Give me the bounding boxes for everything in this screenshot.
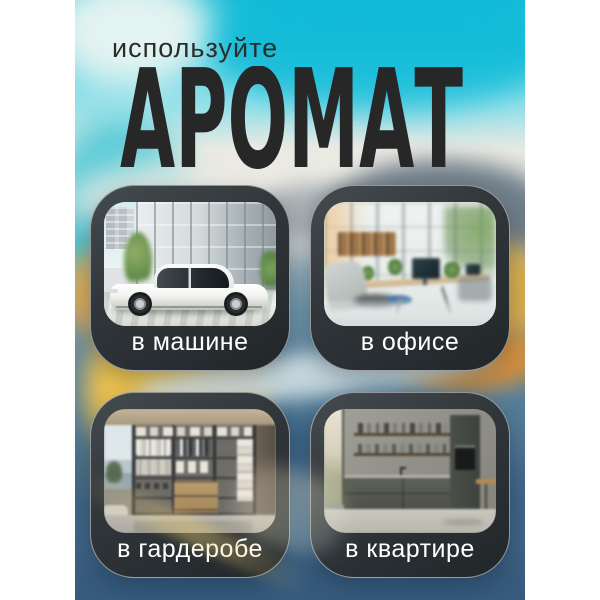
- usage-card-apartment: в квартире: [310, 392, 510, 578]
- usage-card-car: в машине: [90, 185, 290, 371]
- card-label-apartment: в квартире: [311, 535, 509, 564]
- card-label-car: в машине: [91, 328, 289, 357]
- office-scene: [324, 202, 496, 326]
- shoe-row: [136, 483, 168, 489]
- card-photo-car: [104, 202, 276, 326]
- hanging-clothes-dark: [176, 439, 211, 456]
- front-wheel: [128, 292, 152, 316]
- monitor-small: [466, 264, 480, 275]
- car-windows: [157, 268, 229, 288]
- kicker-text: используйте: [112, 35, 278, 62]
- card-label-wardrobe: в гардеробе: [91, 535, 289, 564]
- kitchen-scene: [324, 409, 496, 533]
- wooden-drawers: [174, 481, 218, 513]
- title-graphic: АРОМАТ: [118, 66, 468, 176]
- small-tree: [106, 461, 122, 483]
- car-scene: [104, 202, 276, 326]
- desk-plant: [444, 262, 460, 278]
- kitchen-soft-layer: [324, 409, 496, 533]
- open-shelf: [354, 433, 450, 436]
- usage-card-office: в офисе: [310, 185, 510, 371]
- green-tree-right: [260, 248, 276, 290]
- monitor-stand: [423, 278, 427, 285]
- open-shelf: [354, 453, 450, 456]
- wardrobe-soft-layer: [104, 409, 276, 533]
- base-cabinets: [344, 478, 450, 510]
- wood-ceiling: [104, 409, 276, 425]
- wardrobe-scene: [104, 409, 276, 533]
- green-tree-left: [124, 232, 152, 290]
- main-title: АРОМАТ: [120, 66, 463, 176]
- monitor: [412, 258, 440, 279]
- card-photo-apartment: [324, 409, 496, 533]
- glossy-floor: [324, 300, 496, 326]
- folded-stacks: [176, 461, 211, 473]
- faucet-spout: [400, 467, 406, 469]
- tall-window: [324, 409, 344, 505]
- dark-right-wall: [256, 425, 276, 515]
- rug: [134, 521, 252, 533]
- chairs-right: [458, 276, 492, 302]
- storage-boxes: [136, 427, 252, 436]
- card-label-office: в офисе: [311, 328, 509, 357]
- office-soft-layer: [324, 202, 496, 326]
- card-photo-office: [324, 202, 496, 326]
- desk-plant: [388, 259, 402, 275]
- rear-wheel: [224, 292, 248, 316]
- floor-shadow: [442, 519, 484, 525]
- shelving-unit: [132, 425, 256, 515]
- dishes-upper-shelf: [358, 423, 446, 433]
- promo-poster: используйте АРОМАТ в машине: [0, 0, 600, 600]
- dishes-lower-shelf: [358, 444, 446, 453]
- built-in-oven: [455, 445, 475, 470]
- hanging-shirts-light: [136, 439, 171, 456]
- usage-card-wardrobe: в гардеробе: [90, 392, 290, 578]
- hanging-pants: [136, 459, 171, 475]
- card-photo-wardrobe: [104, 409, 276, 533]
- car-headlight: [109, 289, 118, 293]
- bookshelf: [338, 232, 396, 256]
- folded-linens-column: [237, 439, 253, 501]
- side-table-leg: [485, 484, 487, 512]
